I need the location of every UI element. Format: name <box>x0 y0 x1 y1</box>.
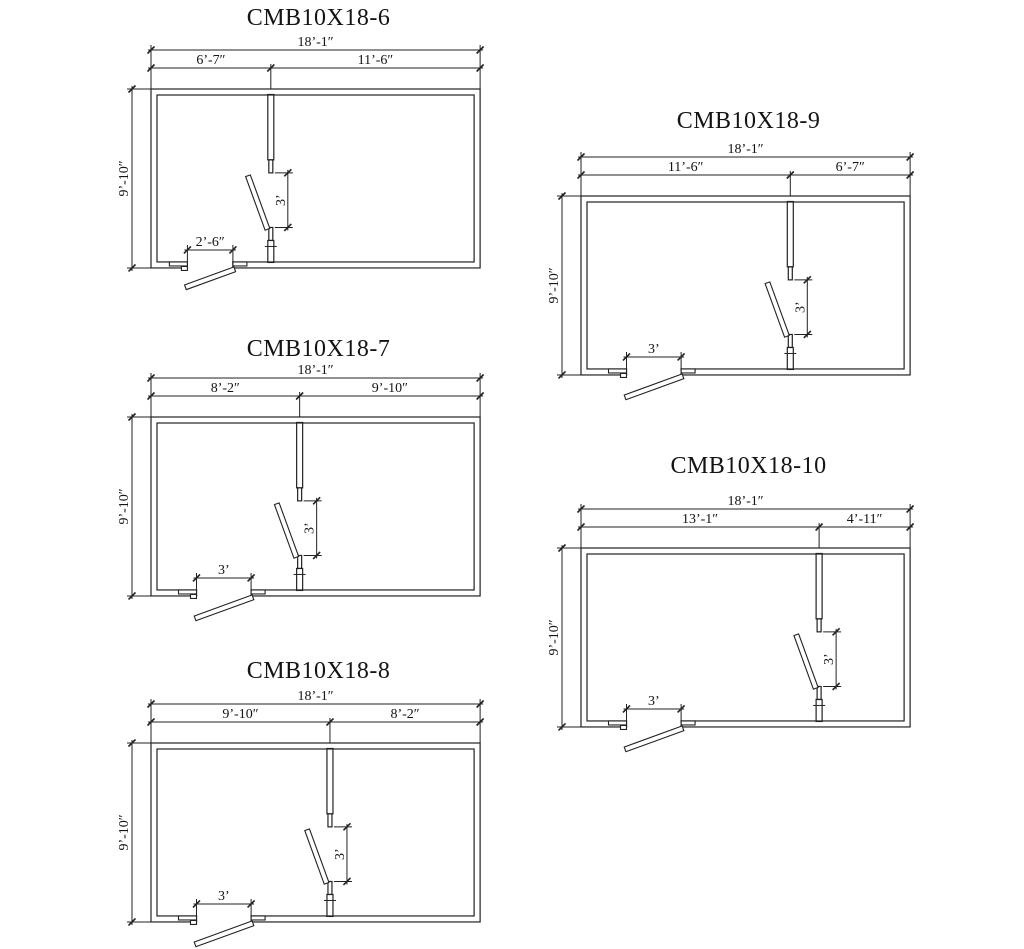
partition-wall-lower <box>816 699 822 721</box>
interior-door-leaf <box>274 503 298 558</box>
interior-door-leaf <box>765 282 789 337</box>
entry-threshold-notch <box>191 920 197 924</box>
partition-jamb-lower <box>269 227 273 240</box>
dim-label-left-segment: 9’-10″ <box>222 707 258 722</box>
interior-door-leaf <box>794 634 818 689</box>
interior-door-leaf <box>305 829 329 884</box>
dim-label-overall: 18’-1″ <box>727 142 763 157</box>
dim-label-height: 9’-10″ <box>117 814 132 850</box>
entry-threshold-notch <box>621 725 627 729</box>
partition-wall-upper <box>327 749 333 814</box>
drawing-canvas: CMB10X18-618’-1″6’-7″11’-6″9’-10″2’-6″3’… <box>0 0 1024 949</box>
dim-label-height: 9’-10″ <box>117 160 132 196</box>
dim-label-left-segment: 6’-7″ <box>196 53 225 68</box>
entry-door-leaf-rect <box>194 595 254 621</box>
dim-label-entry-door: 3’ <box>648 694 660 709</box>
entry-opening-cut <box>627 720 680 730</box>
entry-door-leaf <box>624 726 684 752</box>
entry-jamb-right-lip <box>251 590 265 594</box>
dim-label-entry-door: 3’ <box>218 889 230 904</box>
entry-door-leaf-rect <box>624 726 684 752</box>
entry-jamb-left-lip <box>179 916 197 920</box>
entry-threshold-notch <box>621 373 627 377</box>
dim-label-right-segment: 11’-6″ <box>358 53 394 68</box>
interior-door-leaf-rect <box>274 503 298 558</box>
dim-label-left-segment: 11’-6″ <box>668 160 704 175</box>
interior-door-leaf-rect <box>765 282 789 337</box>
partition-jamb-upper <box>298 488 302 501</box>
dim-label-interior-door: 3’ <box>303 522 318 534</box>
partition-jamb-upper <box>328 814 332 827</box>
dim-label-overall: 18’-1″ <box>297 689 333 704</box>
plan-title: CMB10X18-9 <box>677 108 821 134</box>
plan-title: CMB10X18-8 <box>247 658 391 684</box>
interior-door-leaf <box>246 175 270 230</box>
exterior-wall-inner <box>157 749 474 916</box>
plan-title: CMB10X18-7 <box>247 336 391 362</box>
interior-door-leaf-rect <box>246 175 270 230</box>
entry-jamb-right-lip <box>681 721 695 725</box>
interior-door-leaf-rect <box>305 829 329 884</box>
entry-jamb-left-lip <box>179 590 197 594</box>
dim-label-right-segment: 4’-11″ <box>847 512 883 527</box>
entry-opening-cut <box>197 589 250 599</box>
dim-label-right-segment: 8’-2″ <box>390 707 419 722</box>
dim-label-interior-door: 3’ <box>793 301 808 313</box>
floor-plans-svg: CMB10X18-618’-1″6’-7″11’-6″9’-10″2’-6″3’… <box>0 0 1024 949</box>
partition-wall-lower <box>297 568 303 590</box>
dim-label-right-segment: 6’-7″ <box>836 160 865 175</box>
exterior-wall-inner <box>587 202 904 369</box>
partition-wall-lower <box>327 894 333 916</box>
partition-wall-lower <box>787 347 793 369</box>
partition-wall-lower <box>268 240 274 262</box>
entry-jamb-left-lip <box>609 721 627 725</box>
exterior-wall-outer <box>151 417 480 596</box>
partition-jamb-upper <box>817 619 821 632</box>
dim-label-left-segment: 8’-2″ <box>211 381 240 396</box>
entry-jamb-left-lip <box>169 262 187 266</box>
entry-jamb-left-lip <box>609 369 627 373</box>
exterior-wall-outer <box>151 743 480 922</box>
dim-label-overall: 18’-1″ <box>297 363 333 378</box>
entry-door-leaf-rect <box>194 921 254 947</box>
floor-plan-cmb10x18-7: CMB10X18-718’-1″8’-2″9’-10″9’-10″3’3’ <box>117 336 484 621</box>
partition-jamb-lower <box>788 334 792 347</box>
plan-title: CMB10X18-10 <box>670 453 826 479</box>
entry-jamb-right-lip <box>233 262 247 266</box>
partition-jamb-lower <box>298 555 302 568</box>
dim-label-overall: 18’-1″ <box>297 35 333 50</box>
floor-plan-cmb10x18-9: CMB10X18-918’-1″11’-6″6’-7″9’-10″3’3’ <box>547 108 914 400</box>
partition-jamb-lower <box>328 881 332 894</box>
dim-label-height: 9’-10″ <box>547 619 562 655</box>
floor-plan-cmb10x18-6: CMB10X18-618’-1″6’-7″11’-6″9’-10″2’-6″3’ <box>117 5 484 290</box>
floor-plan-cmb10x18-8: CMB10X18-818’-1″9’-10″8’-2″9’-10″3’3’ <box>117 658 484 947</box>
exterior-wall-inner <box>157 423 474 590</box>
partition-jamb-lower <box>817 686 821 699</box>
entry-door-leaf <box>194 595 254 621</box>
entry-opening-cut <box>188 261 232 271</box>
entry-opening-cut <box>197 915 250 925</box>
entry-threshold-notch <box>191 594 197 598</box>
dim-label-overall: 18’-1″ <box>727 494 763 509</box>
exterior-wall-outer <box>581 196 910 375</box>
exterior-wall-inner <box>587 554 904 721</box>
interior-door-leaf-rect <box>794 634 818 689</box>
dim-label-interior-door: 3’ <box>333 848 348 860</box>
dim-label-entry-door: 3’ <box>648 342 660 357</box>
exterior-wall-outer <box>581 548 910 727</box>
partition-wall-upper <box>787 202 793 267</box>
entry-door-leaf <box>624 374 684 400</box>
partition-wall-upper <box>268 95 274 160</box>
partition-wall-upper <box>297 423 303 488</box>
entry-opening-cut <box>627 368 680 378</box>
dim-label-interior-door: 3’ <box>274 194 289 206</box>
entry-jamb-right-lip <box>681 369 695 373</box>
plan-title: CMB10X18-6 <box>247 5 391 31</box>
entry-jamb-right-lip <box>251 916 265 920</box>
entry-door-leaf <box>194 921 254 947</box>
partition-jamb-upper <box>269 160 273 173</box>
dim-label-height: 9’-10″ <box>547 267 562 303</box>
dim-label-left-segment: 13’-1″ <box>682 512 718 527</box>
dim-label-interior-door: 3’ <box>822 653 837 665</box>
partition-wall-upper <box>816 554 822 619</box>
dim-label-right-segment: 9’-10″ <box>372 381 408 396</box>
dim-label-entry-door: 2’-6″ <box>196 235 225 250</box>
entry-door-leaf-rect <box>624 374 684 400</box>
dim-label-entry-door: 3’ <box>218 563 230 578</box>
entry-threshold-notch <box>181 266 187 270</box>
dim-label-height: 9’-10″ <box>117 488 132 524</box>
partition-jamb-upper <box>788 267 792 280</box>
floor-plan-cmb10x18-10: CMB10X18-1018’-1″13’-1″4’-11″9’-10″3’3’ <box>547 453 914 752</box>
